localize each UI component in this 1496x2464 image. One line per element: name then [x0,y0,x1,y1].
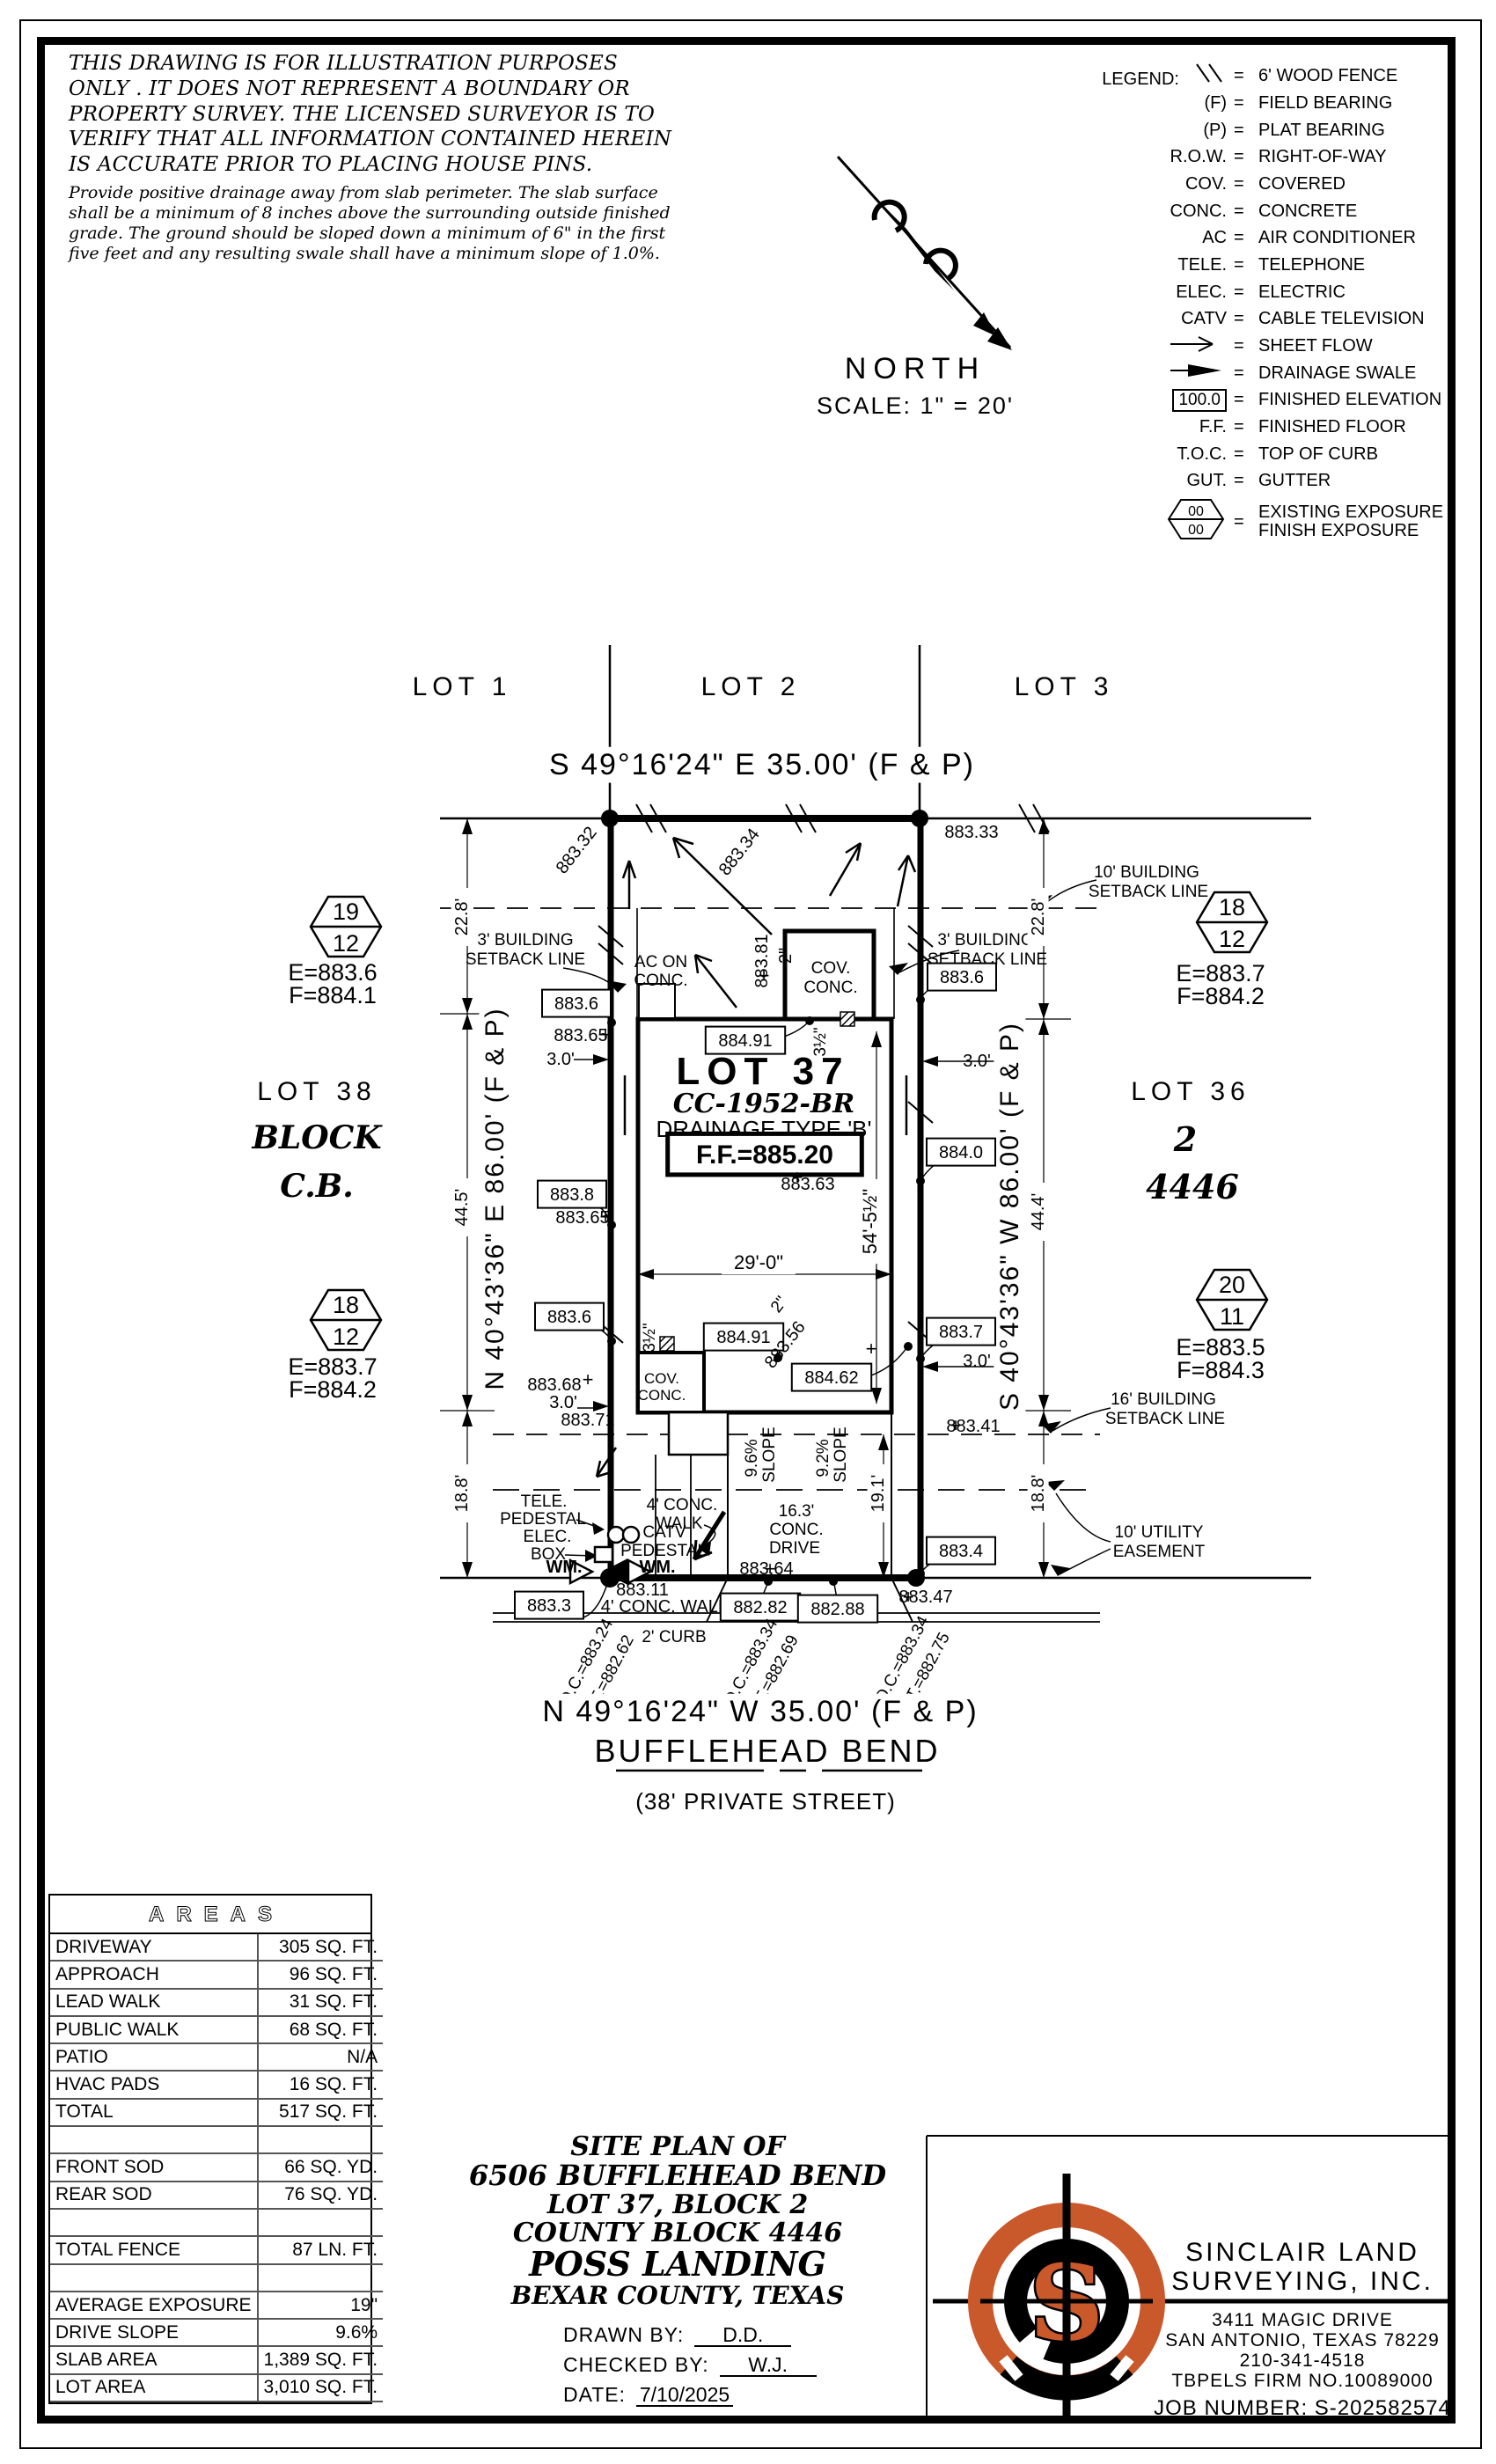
plat-label: 884.91 [716,1328,770,1347]
site-plan-sheet: THIS DRAWING IS FOR ILLUSTRATION PURPOSE… [0,0,1496,2464]
plat-label: 9.6% [743,1439,761,1477]
area-label: TOTAL FENCE [50,2236,258,2263]
areas-table-row [50,2209,383,2236]
wood-fence-icon [1188,62,1227,84]
area-label: HVAC PADS [50,2071,258,2098]
job-number: JOB NUMBER: S-202582574 [1126,2397,1478,2420]
areas-table-row: APPROACH96 SQ. FT. [50,1961,383,1988]
firm-name-line2: SURVEYING, INC. [1126,2267,1478,2296]
plat-label: + [583,1368,594,1390]
plat-label: 882.82 [733,1598,787,1617]
plat-label: DRIVE [769,1539,820,1558]
plat-label: 883.8 [550,1185,594,1205]
plat-label: SETBACK LINE [1105,1410,1225,1428]
plat-label: 9.2% [814,1439,832,1477]
plat-label: F=884.2 [289,1376,377,1403]
plat-label: 883.6 [547,1308,591,1327]
title-block-field: DATE:7/10/2025 [563,2383,880,2407]
areas-table-row: DRIVE SLOPE9.6% [50,2319,383,2346]
legend-item-label: PLAT BEARING [1258,121,1480,140]
area-value: 96 SQ. FT. [258,1961,384,1988]
plat-label: LOT 1 [413,672,512,701]
legend-item: =DRAINAGE SWALE [1102,360,1480,387]
area-value: 16 SQ. FT. [258,2071,384,2098]
title-block: SITE PLAN OF6506 BUFFLEHEAD BENDLOT 37, … [414,2133,942,2308]
plat-label: 883.6 [940,968,984,987]
plat-label: CONC. [803,979,857,997]
legend-item: TELE.=TELEPHONE [1102,252,1480,279]
plat-label: LOT 37 [676,1050,849,1093]
areas-table-row: DRIVEWAY305 SQ. FT. [50,1934,383,1961]
legend: LEGEND:=6' WOOD FENCE(F)=FIELD BEARING(P… [1102,62,1480,549]
area-label: LOT AREA [50,2374,258,2402]
plat-label: + [903,1586,914,1608]
area-label: APPROACH [50,1961,258,1988]
plat-label: AC ON [634,953,687,972]
plat-label: 22.8' [452,898,472,936]
plat-label: LOT 36 [1131,1077,1250,1106]
north-arrow-icon [838,157,1012,350]
area-label: FRONT SOD [50,2153,258,2181]
legend-item-label: CONCRETE [1258,202,1480,221]
plat-label: 18.8' [452,1475,472,1513]
legend-item: (F)=FIELD BEARING [1102,90,1480,117]
plat-label: 883.71 [561,1411,614,1430]
areas-table-row: HVAC PADS16 SQ. FT. [50,2071,383,2098]
legend-item-label: FINISHED FLOOR [1258,418,1480,436]
plat-label: 883.3 [527,1596,571,1616]
plat-label: 10' BUILDING [1094,863,1199,882]
field-label: DATE: [563,2383,626,2407]
plat-label: (38' PRIVATE STREET) [635,1788,896,1815]
plat-label: 3.0' [546,1050,575,1069]
firm-phone: 210-341-4518 [1126,2350,1478,2371]
hex-top-number: 18 [1219,894,1245,920]
title-block-fields: DRAWN BY:D.D.CHECKED BY:W.J.DATE:7/10/20… [563,2323,880,2413]
title-block-line: 6506 BUFFLEHEAD BEND [414,2161,942,2191]
area-label: REAR SOD [50,2182,258,2209]
plat-label: LOT 3 [1015,672,1114,701]
plat-label: F=884.2 [1177,983,1265,1009]
field-value: D.D. [694,2324,791,2347]
legend-item: ELEC.=ELECTRIC [1102,279,1480,306]
legend-item-label: SHEET FLOW [1258,337,1480,356]
areas-table-row: FRONT SOD66 SQ. YD. [50,2153,383,2181]
plat-label: F=884.1 [289,982,377,1008]
area-value: 9.6% [258,2319,384,2346]
areas-table-row: PATION/A [50,2043,383,2071]
area-label: PUBLIC WALK [50,2016,258,2043]
legend-item-label: CABLE TELEVISION [1258,310,1480,328]
area-label [50,2209,258,2236]
plat-label: 3.0' [549,1393,577,1412]
legend-item: (P)=PLAT BEARING [1102,117,1480,144]
area-label: AVERAGE EXPOSURE [50,2292,258,2319]
north-label: NORTH [810,352,1021,386]
title-block-field: DRAWN BY:D.D. [563,2323,880,2347]
area-value: 3,010 SQ. FT. [258,2374,384,2402]
plat-label: 3½" [641,1323,659,1352]
svg-text:00: 00 [1188,523,1204,538]
plat-label: 883.4 [939,1542,983,1561]
area-label: DRIVE SLOPE [50,2319,258,2346]
area-value: N/A [258,2043,384,2071]
exposure-hex-icon: 0000 [1165,495,1227,544]
legend-item: AC=AIR CONDITIONER [1102,224,1480,252]
plat-label: 10' UTILITY [1115,1523,1204,1542]
plat-label: 16.3' [779,1502,815,1521]
plat-label: LOT 38 [257,1077,377,1106]
legend-item-label: AIR CONDITIONER [1258,229,1480,247]
areas-table-row: REAR SOD76 SQ. YD. [50,2182,383,2209]
plat-label: + [759,964,770,986]
legend-item: =SHEET FLOW [1102,333,1480,360]
plat-label: 22.8' [1029,898,1048,936]
legend-item: T.O.C.=TOP OF CURB [1102,441,1480,468]
legend-title: LEGEND: [1102,70,1179,90]
legend-item-label: COVERED [1258,175,1480,194]
plat-label: 4' CONC. WALK [601,1597,730,1617]
legend-item-label: ELECTRIC [1258,283,1480,302]
plat-label: PEDESTAL [500,1510,586,1529]
plat-label: 2" [776,948,796,964]
plat-label: + [765,1558,776,1580]
legend-item: LEGEND:=6' WOOD FENCE [1102,62,1480,90]
hex-bottom-number: 12 [1219,926,1245,952]
plat-label: + [600,1023,612,1045]
plat-label: BUFFLEHEAD BEND [594,1733,940,1769]
plat-label: 29'-0" [734,1251,783,1273]
plat-label: 882.88 [810,1600,864,1619]
plat-label: + [600,1206,612,1228]
legend-item: 0000=EXISTING EXPOSURE FINISH EXPOSURE [1102,495,1480,549]
sheet-flow-icon [1169,335,1227,353]
legend-item-label: 6' WOOD FENCE [1258,67,1480,85]
legend-item-label: FIELD BEARING [1258,94,1480,113]
area-value: 19" [258,2292,384,2319]
plat-label: 2 [1173,1119,1197,1159]
plat-label: 3.0' [963,1352,991,1371]
legend-item-label: TOP OF CURB [1258,445,1480,464]
area-label: LEAD WALK [50,1989,258,2016]
plat-label: 883.7 [939,1323,983,1342]
finished-elevation-symbol: 100.0 [1172,389,1227,412]
area-label: DRIVEWAY [50,1934,258,1961]
field-label: DRAWN BY: [563,2323,684,2347]
plat-label: 16' BUILDING [1111,1390,1216,1409]
plat-label: TELE. [521,1492,568,1511]
legend-item: GUT.=GUTTER [1102,468,1480,495]
hex-bottom-number: 11 [1220,1303,1244,1330]
plat-label: 3.0' [963,1052,991,1071]
firm-address-line2: SAN ANTONIO, TEXAS 78229 [1126,2330,1478,2350]
plat-label: + [792,1166,803,1188]
plat-label: LOT 2 [701,672,801,701]
plat-label: 883.33 [944,823,998,842]
title-block-line: LOT 37, BLOCK 2 [414,2191,942,2219]
area-label: SLAB AREA [50,2346,258,2373]
area-value: 66 SQ. YD. [258,2153,384,2181]
legend-item-label: FINISHED ELEVATION [1258,391,1480,409]
plat-label: CONC. [634,972,687,990]
plat-label: SLOPE [832,1426,850,1482]
legend-item-label: EXISTING EXPOSURE FINISH EXPOSURE [1258,503,1480,540]
areas-table-row [50,2264,383,2292]
firm-address-line1: 3411 MAGIC DRIVE [1126,2310,1478,2330]
area-value: 76 SQ. YD. [258,2182,384,2209]
area-value: 31 SQ. FT. [258,1989,384,2016]
drainage-swale-icon [1169,362,1227,379]
plat-label: + [950,1414,962,1436]
legend-item: CONC.=CONCRETE [1102,198,1480,225]
plat-label: CONC. [638,1387,686,1404]
plat-label: 883.63 [781,1175,834,1194]
areas-table-row [50,2126,383,2153]
firm-info: SINCLAIR LAND SURVEYING, INC. 3411 MAGIC… [1126,2238,1478,2421]
field-label: CHECKED BY: [563,2353,709,2377]
plat-label: ELEC. [524,1528,572,1546]
plat-label: 44.4' [1029,1193,1048,1231]
plat-label: SLOPE [760,1426,779,1482]
plat-label: 4446 [1146,1167,1239,1206]
legend-item: R.O.W.=RIGHT-OF-WAY [1102,143,1480,171]
plat-label: S 40°43'36" W 86.00' (F & P) [995,1022,1024,1411]
title-block-line: BEXAR COUNTY, TEXAS [414,2283,942,2309]
firm-registration: TBPELS FIRM NO.10089000 [1126,2371,1478,2391]
plat-label: 2' CURB [642,1628,706,1646]
area-label: TOTAL [50,2099,258,2126]
areas-table-row: LEAD WALK31 SQ. FT. [50,1989,383,2016]
legend-item: 100.0=FINISHED ELEVATION [1102,387,1480,414]
hex-bottom-number: 12 [333,1324,359,1350]
area-value [258,2209,384,2236]
hex-top-number: 20 [1219,1272,1245,1298]
title-block-line: SITE PLAN OF [414,2133,942,2161]
areas-table-row: AVERAGE EXPOSURE19" [50,2292,383,2319]
plat-label: + [866,1338,877,1360]
field-value: 7/10/2025 [636,2384,733,2407]
scale-label: SCALE: 1" = 20' [766,392,1065,420]
areas-table-row: PUBLIC WALK68 SQ. FT. [50,2016,383,2043]
plat-label: 883.6 [554,994,598,1014]
plat-label: 884.91 [718,1031,772,1051]
legend-item-label: DRAINAGE SWALE [1258,364,1480,383]
legend-item: F.F.=FINISHED FLOOR [1102,414,1480,441]
plat-label: CONC. [769,1521,823,1539]
plat-label: C.B. [280,1168,354,1205]
area-label [50,2264,258,2292]
field-value: W.J. [720,2354,817,2377]
plat-label: COV. [811,959,851,978]
plat-label: 4' CONC. [647,1496,718,1514]
legend-item-label: RIGHT-OF-WAY [1258,148,1480,166]
title-block-line: COUNTY BLOCK 4446 [414,2219,942,2248]
plat-label: 884.62 [804,1368,858,1388]
legend-item: CATV=CABLE TELEVISION [1102,306,1480,334]
title-block-line: POSS LANDING [414,2247,942,2282]
area-value: 1,389 SQ. FT. [258,2346,384,2373]
plat-label: N 40°43'36" E 86.00' (F & P) [480,1007,510,1390]
plat-label: 883.34 [715,825,764,879]
plat-label: WM. [546,1558,582,1577]
plat-label: 3' BUILDING [477,931,573,950]
areas-table-row: TOTAL FENCE87 LN. FT. [50,2236,383,2263]
plat-label: N 49°16'24" W 35.00' (F & P) [542,1695,978,1728]
plat-label: 883.68 [527,1375,581,1395]
area-value: 305 SQ. FT. [258,1934,384,1961]
hex-top-number: 18 [333,1292,359,1318]
plat-label: 19.1' [869,1475,888,1513]
areas-table-title: AREAS [50,1896,370,1934]
area-value [258,2264,384,2292]
plat-label: EASEMENT [1113,1543,1206,1561]
plat-label: COV. [644,1370,679,1387]
area-value: 87 LN. FT. [258,2236,384,2263]
plat-label: F=884.3 [1177,1357,1265,1383]
legend-item-label: TELEPHONE [1258,256,1480,275]
plat-label: 884.0 [939,1143,983,1162]
plat-label: S 49°16'24" E 35.00' (F & P) [549,748,975,781]
area-label: PATIO [50,2043,258,2071]
hex-bottom-number: 12 [333,930,359,957]
plat-label: BLOCK [251,1119,383,1156]
area-value: 517 SQ. FT. [258,2099,384,2126]
area-value [258,2126,384,2153]
plat-label: 883.32 [553,823,601,877]
plat-label: 54'-5½" [859,1189,881,1254]
areas-table: AREAS DRIVEWAY305 SQ. FT.APPROACH96 SQ. … [48,1894,372,2404]
plat-label: WM. [639,1558,675,1577]
plat-label: WALK [656,1514,702,1533]
plat-label: 44.5' [452,1189,472,1227]
hex-top-number: 19 [333,898,359,925]
plat-label: F.F.=885.20 [696,1140,833,1170]
areas-table-row: LOT AREA3,010 SQ. FT. [50,2374,383,2402]
plat-label: 3' BUILDING [937,931,1033,950]
plat-label: 18.8' [1029,1475,1048,1513]
areas-table-row: SLAB AREA1,389 SQ. FT. [50,2346,383,2373]
plat-label: SETBACK LINE [466,950,585,969]
title-block-field: CHECKED BY:W.J. [563,2353,880,2377]
area-value: 68 SQ. FT. [258,2016,384,2043]
firm-name-line1: SINCLAIR LAND [1126,2238,1478,2267]
plat-label: CC-1952-BR [673,1089,854,1119]
areas-table-row: TOTAL517 SQ. FT. [50,2099,383,2126]
svg-text:00: 00 [1188,504,1204,519]
plat-label: SETBACK LINE [1089,883,1208,901]
area-label [50,2126,258,2153]
legend-item-label: GUTTER [1258,472,1480,490]
legend-item: COV.=COVERED [1102,171,1480,198]
